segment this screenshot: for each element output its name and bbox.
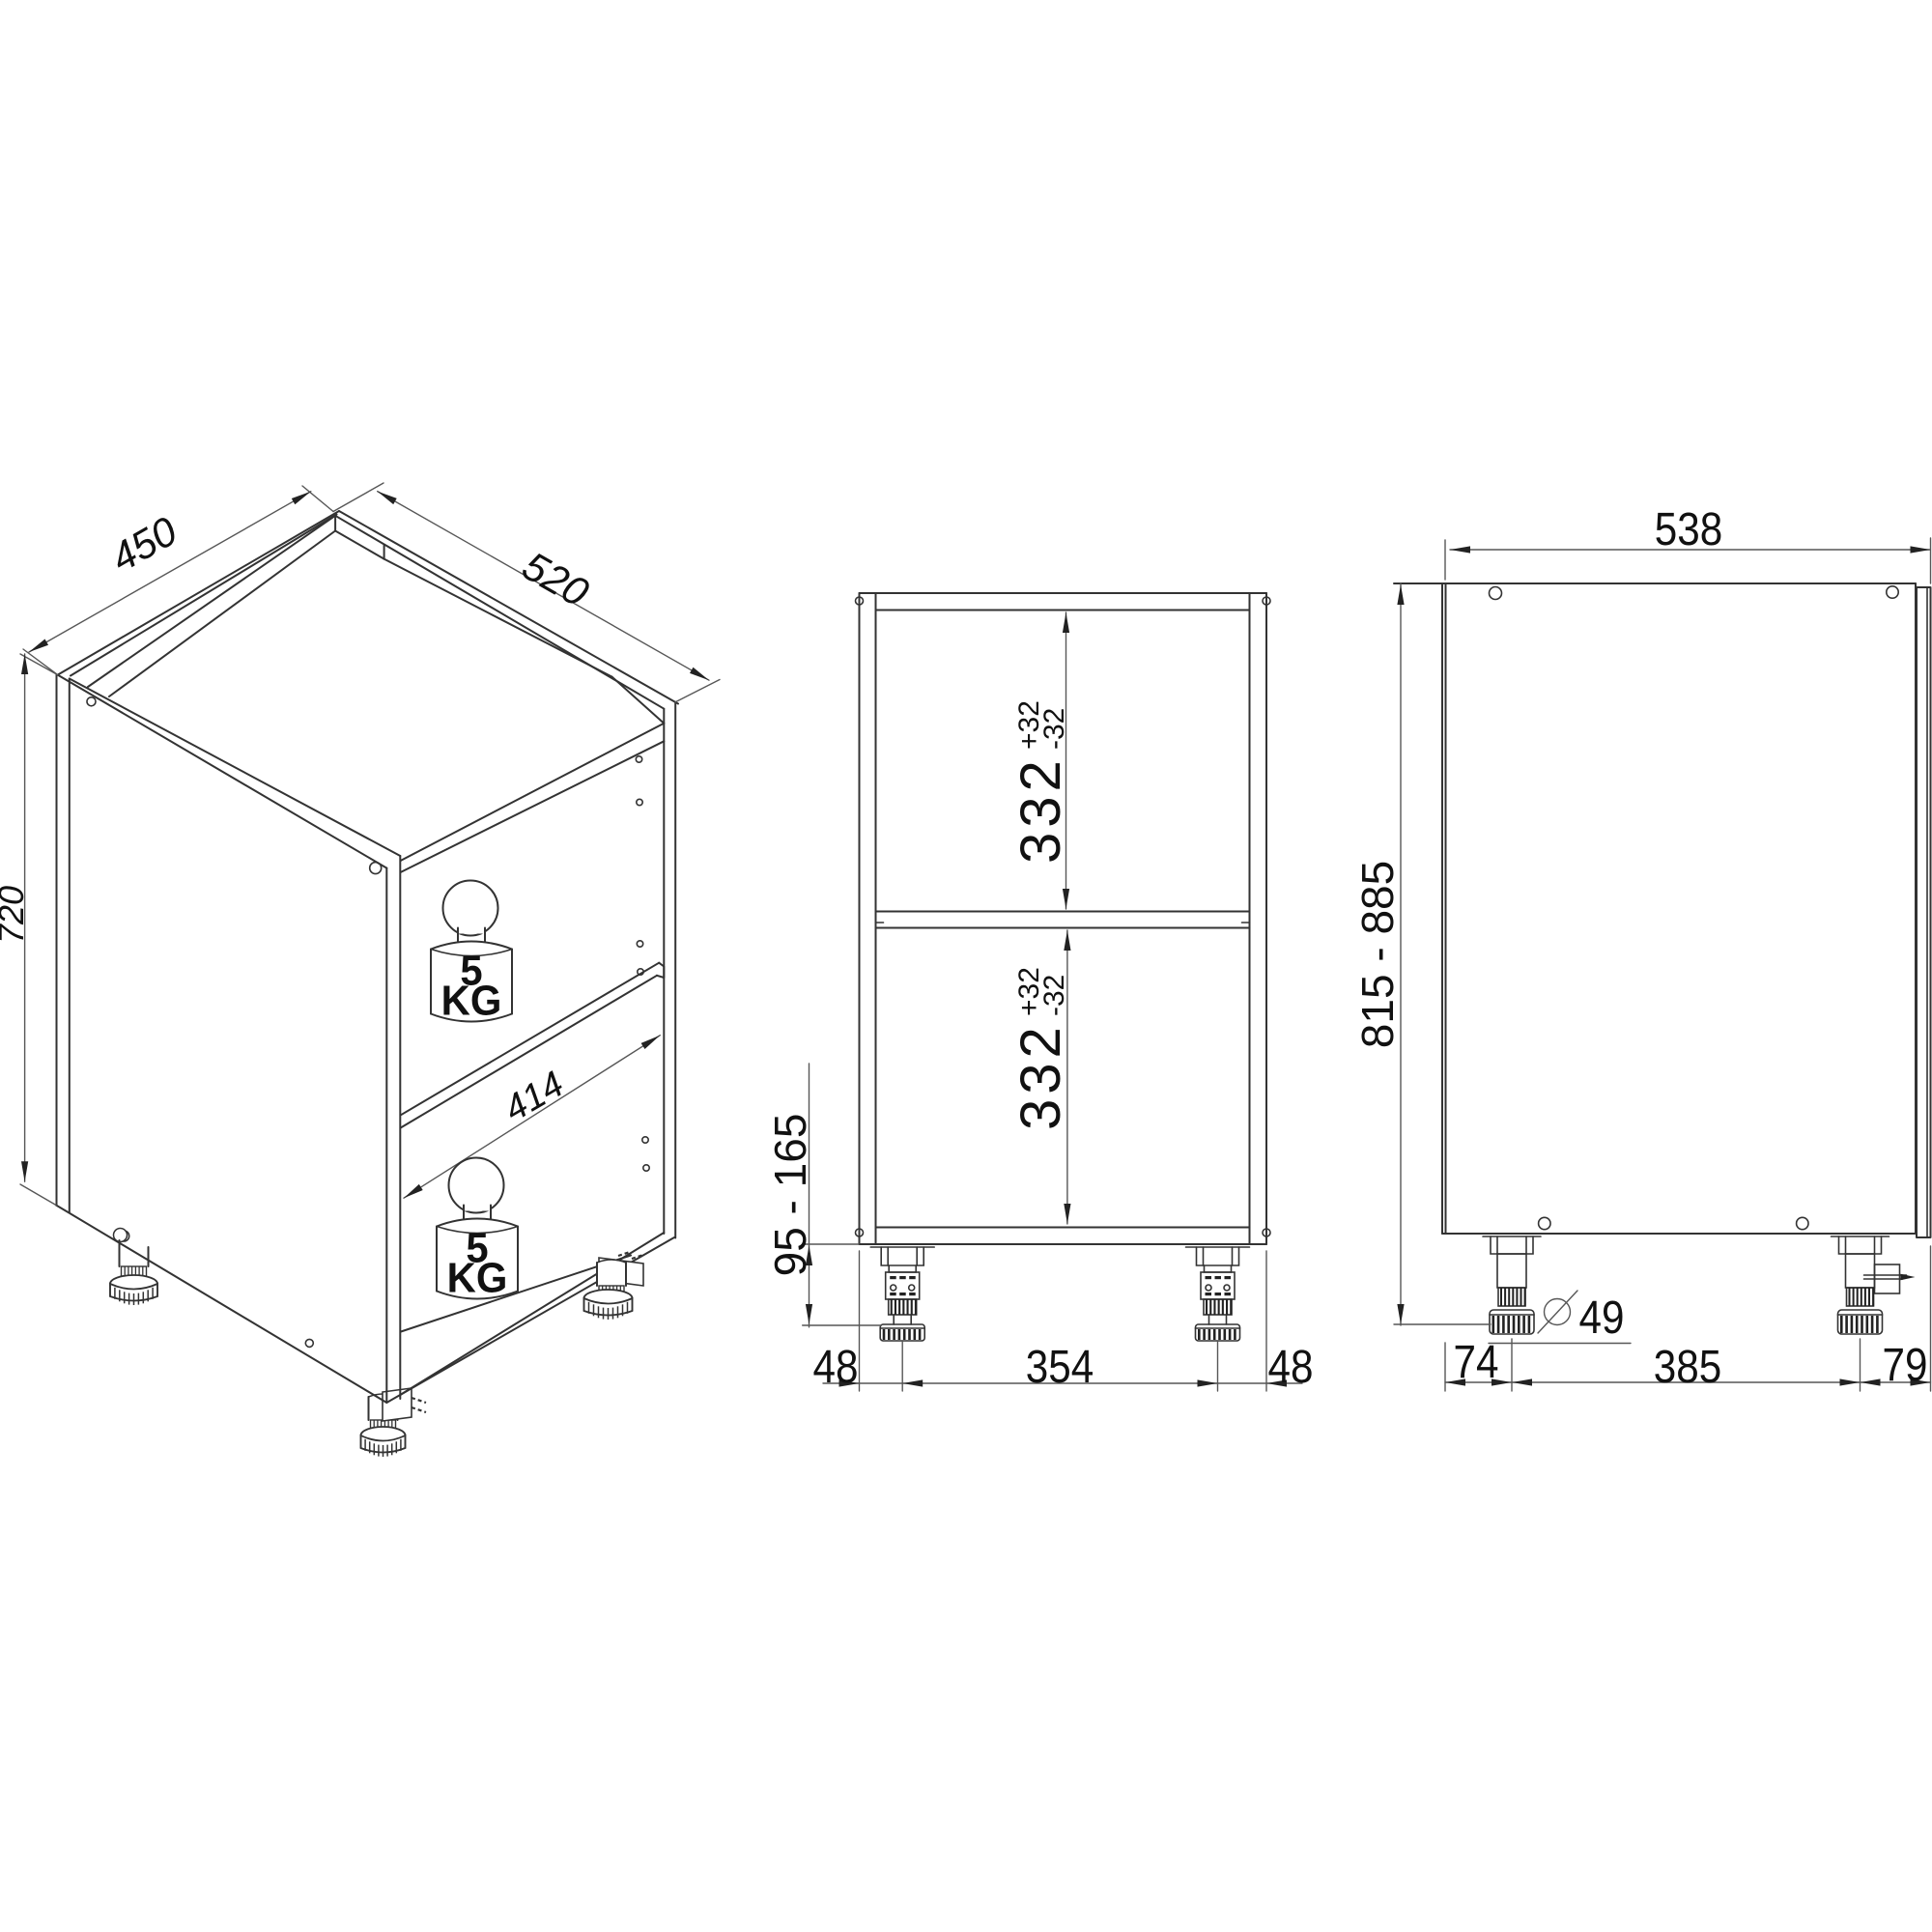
svg-text:385: 385	[1654, 1340, 1721, 1392]
svg-text:-32: -32	[1038, 975, 1070, 1016]
svg-text:48: 48	[1268, 1340, 1314, 1392]
svg-text:815 - 885: 815 - 885	[1352, 861, 1403, 1048]
svg-text:332: 332	[1009, 1022, 1072, 1130]
svg-text:-32: -32	[1038, 708, 1070, 750]
svg-text:KG: KG	[441, 978, 502, 1025]
svg-text:79: 79	[1883, 1338, 1928, 1390]
svg-text:48: 48	[813, 1340, 859, 1392]
svg-text:74: 74	[1454, 1335, 1499, 1387]
svg-text:332: 332	[1009, 755, 1072, 864]
svg-text:KG: KG	[447, 1255, 508, 1302]
svg-text:49: 49	[1579, 1291, 1625, 1343]
svg-text:538: 538	[1655, 502, 1722, 554]
svg-text:95 - 165: 95 - 165	[765, 1114, 815, 1277]
svg-text:720: 720	[0, 886, 31, 944]
svg-text:354: 354	[1026, 1340, 1094, 1392]
